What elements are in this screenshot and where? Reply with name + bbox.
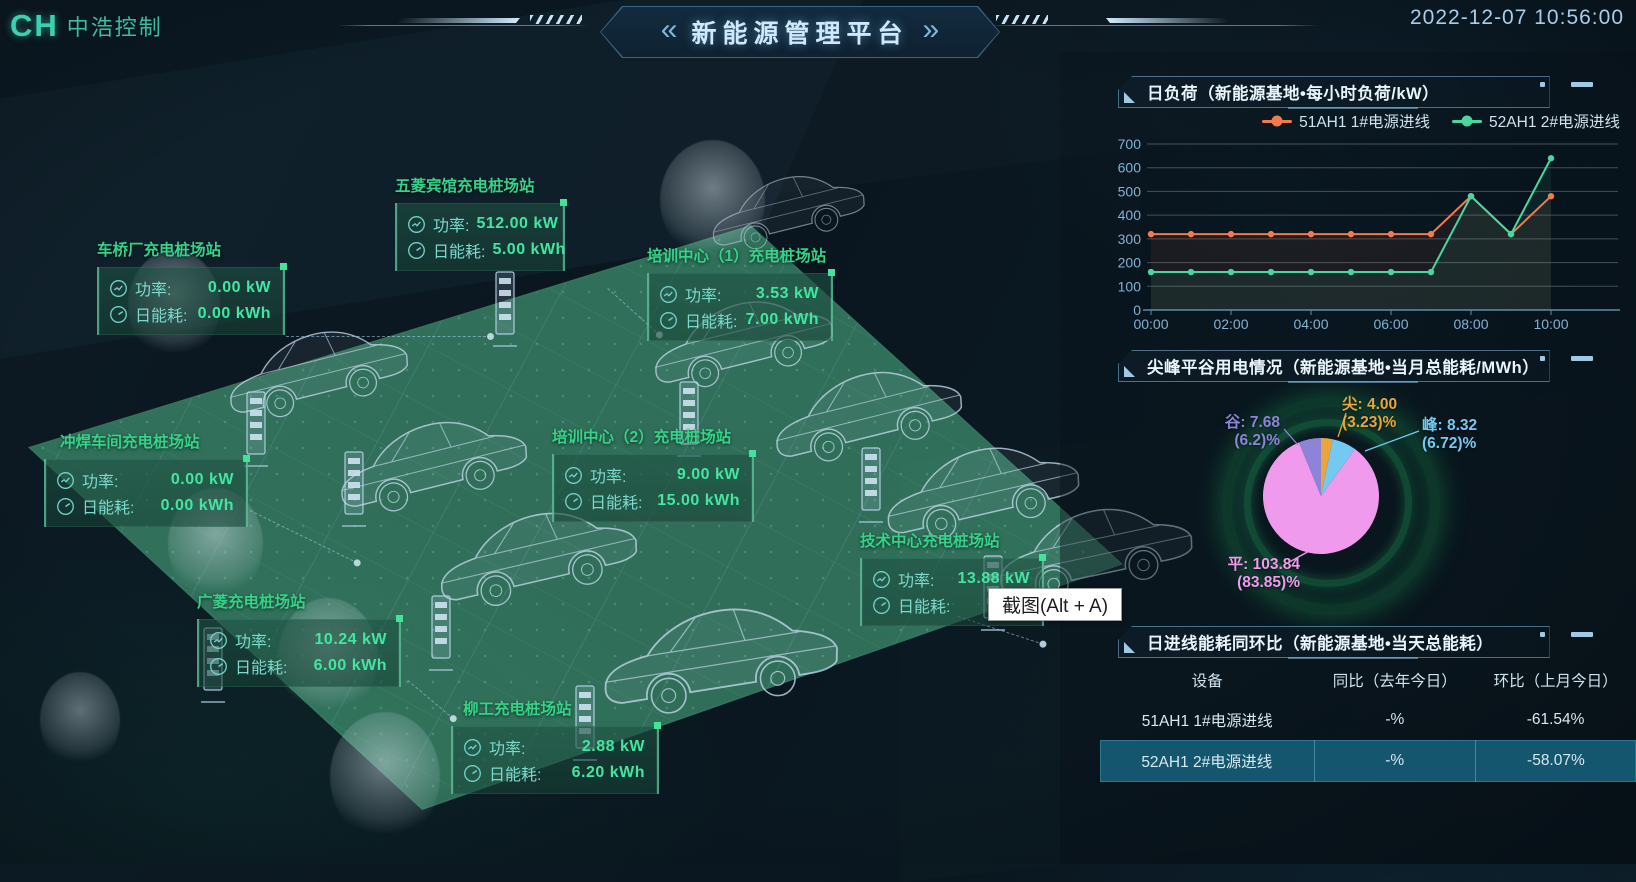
panel-dash-decor xyxy=(1571,82,1593,87)
power-label: 功率: xyxy=(590,463,626,487)
panel-header-load: 日负荷（新能源基地•每小时负荷/kW） xyxy=(1118,76,1550,108)
energy-value: 15.00 kWh xyxy=(657,492,740,510)
logo-mark: CH xyxy=(10,8,59,44)
logo-text: 中浩控制 xyxy=(67,10,163,42)
energy-clock-icon xyxy=(463,764,482,783)
svg-text:04:00: 04:00 xyxy=(1293,316,1328,332)
station-training-2: 培训中心（2）充电桩场站 功率:9.00 kW 日能耗:15.00 kWh xyxy=(552,425,754,522)
title-banner: « 新能源管理平台 » xyxy=(600,6,1000,58)
panel-controls xyxy=(1540,82,1593,87)
energy-label: 日能耗: xyxy=(433,238,485,262)
screenshot-tooltip: 截图(Alt + A) xyxy=(988,588,1122,621)
station-metrics-card[interactable]: 功率:0.00 kW 日能耗:0.00 kWh xyxy=(44,459,248,527)
col-mom: 环比（上月今日） xyxy=(1475,669,1636,691)
panel-dot-decor xyxy=(1540,632,1545,637)
power-gauge-icon xyxy=(872,570,891,589)
power-value: 0.00 kW xyxy=(171,471,234,489)
station-name: 五菱宾馆充电桩场站 xyxy=(395,174,565,196)
power-value: 9.00 kW xyxy=(677,466,740,484)
clock-timestamp: 2022-12-07 10:56:00 xyxy=(1410,6,1624,30)
power-gauge-icon xyxy=(564,466,583,485)
svg-text:100: 100 xyxy=(1118,278,1142,294)
header-decor-right xyxy=(988,12,1318,26)
panel-underline xyxy=(1288,657,1418,659)
panel-title: 尖峰平谷用电情况（新能源基地•当月总能耗/MWh） xyxy=(1147,354,1539,378)
table-row[interactable]: 51AH1 1#电源进线 -% -61.54% xyxy=(1100,700,1636,740)
app-logo: CH 中浩控制 xyxy=(10,8,163,44)
cell-yoy: -% xyxy=(1314,711,1475,729)
svg-text:300: 300 xyxy=(1118,231,1142,247)
power-value: 10.24 kW xyxy=(315,631,387,649)
station-name: 柳工充电桩场站 xyxy=(463,697,659,719)
power-label: 功率: xyxy=(82,468,118,492)
panel-dash-decor xyxy=(1571,356,1593,361)
power-value: 2.88 kW xyxy=(582,738,645,756)
svg-text:06:00: 06:00 xyxy=(1373,316,1408,332)
power-gauge-icon xyxy=(659,285,678,304)
energy-clock-icon xyxy=(56,497,75,516)
chart-legend: 51AH1 1#电源进线52AH1 2#电源进线 xyxy=(1262,110,1620,132)
energy-label: 日能耗: xyxy=(135,302,187,326)
energy-label: 日能耗: xyxy=(590,489,642,513)
svg-text:500: 500 xyxy=(1118,183,1142,199)
pie-label-jian: 尖: 4.00(3.23)% xyxy=(1342,396,1397,432)
power-gauge-icon xyxy=(407,215,426,234)
power-gauge-icon xyxy=(109,279,128,298)
energy-value: 6.20 kWh xyxy=(572,764,645,782)
panel-dot-decor xyxy=(1540,82,1545,87)
energy-label: 日能耗: xyxy=(489,761,541,785)
station-wuling-hotel: 五菱宾馆充电桩场站 功率:512.00 kW 日能耗:5.00 kWh xyxy=(395,174,565,271)
power-gauge-icon xyxy=(56,471,75,490)
energy-clock-icon xyxy=(872,596,891,615)
station-metrics-card[interactable]: 功率:9.00 kW 日能耗:15.00 kWh xyxy=(552,454,754,522)
legend-item[interactable]: 52AH1 2#电源进线 xyxy=(1452,110,1620,132)
station-training-1: 培训中心（1）充电桩场站 功率:3.53 kW 日能耗:7.00 kWh xyxy=(647,244,833,341)
power-label: 功率: xyxy=(235,628,271,652)
header-decor-left xyxy=(338,12,588,26)
panel-controls xyxy=(1540,632,1593,637)
panel-title: 日负荷（新能源基地•每小时负荷/kW） xyxy=(1147,80,1439,104)
table-header-row: 设备 同比（去年今日） 环比（上月今日） xyxy=(1100,660,1636,700)
cell-mom: -58.07% xyxy=(1476,752,1636,770)
page-title: 新能源管理平台 xyxy=(691,14,908,50)
station-metrics-card[interactable]: 功率:2.88 kW 日能耗:6.20 kWh xyxy=(451,726,659,794)
station-cheqiao: 车桥厂充电桩场站 功率:0.00 kW 日能耗:0.00 kWh xyxy=(97,238,285,335)
svg-text:400: 400 xyxy=(1118,207,1142,223)
svg-text:600: 600 xyxy=(1118,160,1142,176)
energy-comparison-table: 设备 同比（去年今日） 环比（上月今日） 51AH1 1#电源进线 -% -61… xyxy=(1100,660,1636,782)
cell-device: 51AH1 1#电源进线 xyxy=(1100,709,1314,731)
peak-valley-pie-chart: 尖: 4.00(3.23)% 峰: 8.32(6.72)% 谷: 7.68(6.… xyxy=(1160,385,1580,625)
station-metrics-card[interactable]: 功率:0.00 kW 日能耗:0.00 kWh xyxy=(97,267,285,335)
station-name: 技术中心充电桩场站 xyxy=(860,529,1044,551)
power-label: 功率: xyxy=(135,276,171,300)
power-value: 512.00 kW xyxy=(476,215,558,233)
panel-dot-decor xyxy=(1540,356,1545,361)
energy-value: 0.00 kWh xyxy=(161,497,234,515)
station-name: 车桥厂充电桩场站 xyxy=(97,238,285,260)
pie-label-feng: 峰: 8.32(6.72)% xyxy=(1422,417,1477,453)
col-yoy: 同比（去年今日） xyxy=(1314,669,1475,691)
power-value: 0.00 kW xyxy=(208,279,271,297)
svg-text:02:00: 02:00 xyxy=(1213,316,1248,332)
station-metrics-card[interactable]: 功率:512.00 kW 日能耗:5.00 kWh xyxy=(395,203,565,271)
energy-value: 5.00 kWh xyxy=(492,241,565,259)
pie-label-ping: 平: 103.84(83.85)% xyxy=(1180,556,1300,592)
power-label: 功率: xyxy=(685,282,721,306)
pie-label-gu: 谷: 7.68(6.2)% xyxy=(1184,414,1280,450)
power-value: 13.88 kW xyxy=(958,570,1030,588)
power-gauge-icon xyxy=(463,738,482,757)
panel-dash-decor xyxy=(1571,632,1593,637)
power-label: 功率: xyxy=(433,212,469,236)
chevron-left-icon: « xyxy=(661,15,678,45)
station-liugong: 柳工充电桩场站 功率:2.88 kW 日能耗:6.20 kWh xyxy=(451,697,659,794)
chevron-right-icon: » xyxy=(923,15,940,45)
panel-header-pie: 尖峰平谷用电情况（新能源基地•当月总能耗/MWh） xyxy=(1118,350,1550,382)
energy-clock-icon xyxy=(564,492,583,511)
power-value: 3.53 kW xyxy=(756,285,819,303)
table-row-highlighted[interactable]: 52AH1 2#电源进线 -% -58.07% xyxy=(1100,740,1636,782)
station-metrics-card[interactable]: 功率:10.24 kW 日能耗:6.00 kWh xyxy=(197,619,401,687)
station-metrics-card[interactable]: 功率:3.53 kW 日能耗:7.00 kWh xyxy=(647,273,833,341)
energy-value: 6.00 kWh xyxy=(314,657,387,675)
col-device: 设备 xyxy=(1100,669,1314,691)
panel-underline xyxy=(1288,107,1418,109)
panel-title: 日进线能耗同环比（新能源基地•当天总能耗） xyxy=(1147,630,1493,654)
svg-text:700: 700 xyxy=(1118,136,1142,152)
panel-controls xyxy=(1540,356,1593,361)
power-gauge-icon xyxy=(209,631,228,650)
cell-mom: -61.54% xyxy=(1475,711,1636,729)
load-line-chart: 010020030040050060070000:0002:0004:0006:… xyxy=(1096,132,1624,332)
panel-underline xyxy=(1288,381,1418,383)
station-name: 培训中心（1）充电桩场站 xyxy=(647,244,833,266)
station-name: 广菱充电桩场站 xyxy=(197,590,401,612)
station-name: 冲焊车间充电桩场站 xyxy=(60,430,248,452)
svg-text:08:00: 08:00 xyxy=(1453,316,1488,332)
station-chonghan: 冲焊车间充电桩场站 功率:0.00 kW 日能耗:0.00 kWh xyxy=(44,430,248,527)
energy-value: 7.00 kWh xyxy=(746,311,819,329)
panel-header-table: 日进线能耗同环比（新能源基地•当天总能耗） xyxy=(1118,626,1550,658)
energy-clock-icon xyxy=(209,657,228,676)
power-label: 功率: xyxy=(898,567,934,591)
energy-label: 日能耗: xyxy=(235,654,287,678)
svg-text:200: 200 xyxy=(1118,255,1142,271)
energy-label: 日能耗: xyxy=(898,593,950,617)
station-guangling: 广菱充电桩场站 功率:10.24 kW 日能耗:6.00 kWh xyxy=(197,590,401,687)
svg-text:00:00: 00:00 xyxy=(1133,316,1168,332)
cell-device: 52AH1 2#电源进线 xyxy=(1100,740,1315,782)
svg-text:10:00: 10:00 xyxy=(1533,316,1568,332)
power-label: 功率: xyxy=(489,735,525,759)
cell-yoy: -% xyxy=(1315,740,1476,782)
energy-clock-icon xyxy=(659,311,678,330)
legend-item[interactable]: 51AH1 1#电源进线 xyxy=(1262,110,1430,132)
energy-clock-icon xyxy=(109,305,128,324)
energy-clock-icon xyxy=(407,241,426,260)
energy-value: 0.00 kWh xyxy=(198,305,271,323)
energy-label: 日能耗: xyxy=(82,494,134,518)
energy-label: 日能耗: xyxy=(685,308,737,332)
station-name: 培训中心（2）充电桩场站 xyxy=(552,425,754,447)
